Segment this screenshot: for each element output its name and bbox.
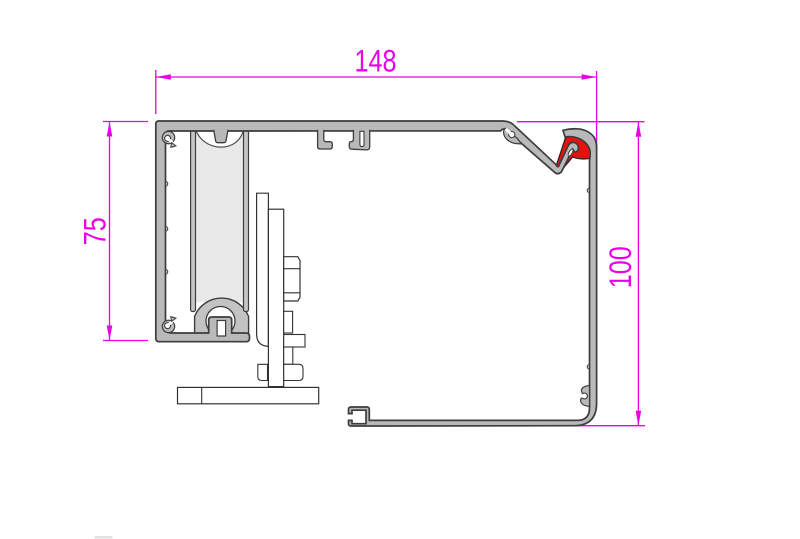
svg-text:148: 148 [354, 44, 396, 79]
svg-text:75: 75 [78, 217, 113, 245]
svg-text:100: 100 [603, 246, 638, 288]
